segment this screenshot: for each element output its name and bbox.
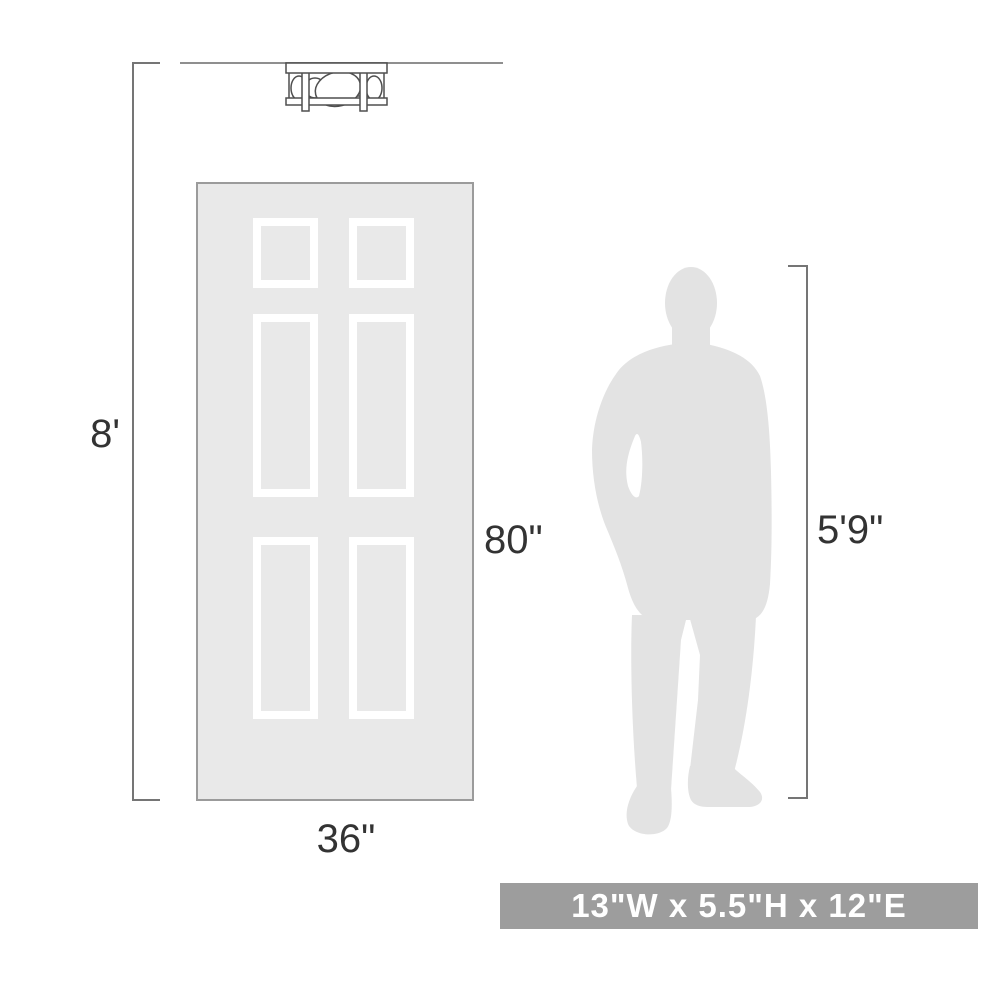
- door-height-label: 80": [484, 517, 543, 563]
- person-height-label: 5'9": [817, 507, 883, 553]
- product-dimensions-banner: 13"W x 5.5"H x 12"E: [500, 883, 978, 929]
- door-slab: [197, 183, 473, 800]
- ceiling-height-dimension-line: [133, 63, 160, 800]
- six-panel-door-icon: [197, 183, 473, 800]
- standing-man-silhouette-icon: [592, 267, 772, 834]
- door-width-label: 36": [306, 816, 386, 862]
- dimension-diagram-graphic: [0, 0, 1000, 1000]
- product-dimensions-text: 13"W x 5.5"H x 12"E: [571, 887, 907, 925]
- product-dimension-diagram: 8' 80" 36" 5'9" 13"W x 5.5"H x 12"E: [0, 0, 1000, 1000]
- person-height-dimension-line: [788, 266, 807, 798]
- ceiling-height-label: 8': [63, 411, 120, 457]
- ceiling-light-fixture-icon: [286, 63, 387, 111]
